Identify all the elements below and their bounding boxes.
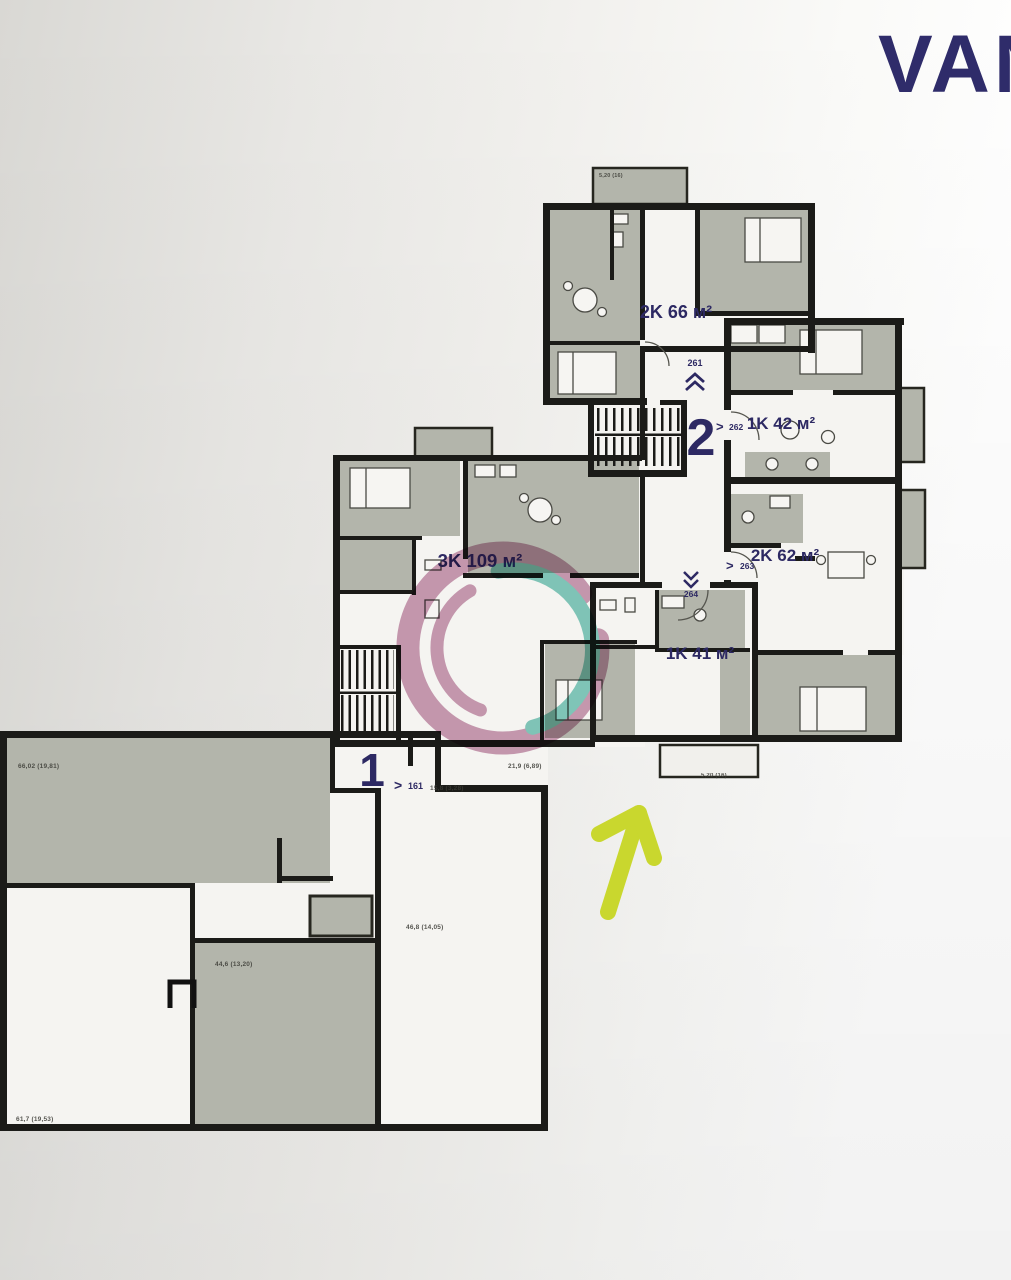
dimension-commercial-top-left: 66,02 (19,81) — [18, 763, 59, 770]
apartment-label-1k42: 1K 42 м² — [747, 414, 816, 433]
apartment-number-262: 262 — [729, 422, 743, 432]
floor-plan-drawing: 2K 66 м² 1K 42 м² 2K 62 м² 1K 41 м² 3K 1… — [0, 0, 1011, 1280]
dimension-balcony-top: 5,20 (16) — [599, 173, 623, 179]
stairwell-entrance-2 — [595, 431, 683, 437]
apartment-number-264: 264 — [684, 589, 698, 599]
pointer-263-icon: > — [726, 558, 734, 573]
small-grey-room — [310, 896, 372, 936]
dimension-commercial-right: 46,8 (14,05) — [406, 924, 443, 931]
apartment-number-261: 261 — [687, 358, 702, 368]
apartment-label-1k41: 1K 41 м² — [666, 644, 735, 663]
dimension-entry-step: 15,8 (3,28) — [430, 785, 464, 792]
apartment-label-2k66: 2K 66 м² — [640, 302, 712, 322]
entrance-number-1: 1 — [359, 744, 385, 796]
entrance-number-2: 2 — [687, 409, 716, 467]
dimension-balcony-bottom: 5,20 (16) — [701, 773, 727, 779]
pointer-262-icon: > — [716, 419, 724, 434]
apartment-number-161: 161 — [408, 781, 423, 791]
dimension-commercial-bottom-left: 61,7 (19,53) — [16, 1116, 53, 1123]
dimension-commercial-center: 44,6 (13,20) — [215, 961, 252, 968]
dimension-entrance-hall: 21,9 (6,89) — [508, 763, 542, 770]
brand-logo: VAN — [878, 19, 1011, 110]
pointer-161-icon: > — [394, 777, 402, 793]
apartment-label-2k62: 2K 62 м² — [751, 546, 820, 565]
apartment-number-263: 263 — [740, 561, 754, 571]
floor-plan-photo-page: 2K 66 м² 1K 42 м² 2K 62 м² 1K 41 м² 3K 1… — [0, 0, 1011, 1280]
stairwell-entrance-1 — [339, 689, 396, 695]
